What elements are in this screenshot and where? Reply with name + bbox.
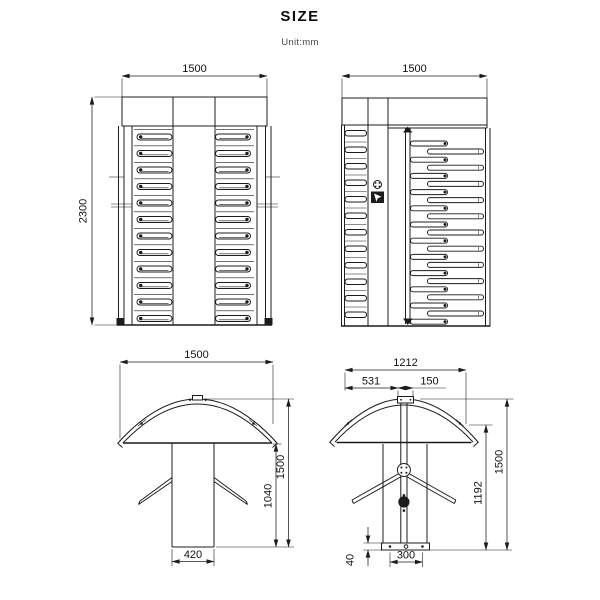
indicator-icon	[374, 181, 382, 189]
page-title: SIZE	[0, 8, 600, 25]
dim-label-tfront-width: 1500	[184, 349, 208, 361]
dim-label-tside-base-width: 300	[397, 550, 415, 562]
dim-label-side-width: 1500	[402, 63, 426, 75]
dim-label-tfront-total-height: 1500	[275, 455, 287, 479]
tfront-tripod-arms	[139, 478, 248, 505]
dim-label-tside-hub-height: 1192	[473, 481, 485, 505]
dim-label-tside-cap-width: 150	[420, 376, 438, 388]
tside-dim-heights: 1192 1500	[420, 399, 514, 550]
side-comb-bars	[345, 131, 367, 318]
tside-dim-offsets: 531 150	[345, 376, 446, 397]
tside-base	[363, 543, 512, 550]
dim-label-tfront-column-height: 1040	[263, 484, 275, 508]
rotor-top-bearing	[403, 127, 413, 133]
front-right-bars	[216, 129, 255, 321]
front-left-bars	[134, 129, 172, 321]
dim-label-front-height: 2300	[78, 199, 90, 223]
tripod-front-view-drawing: 1500	[85, 348, 315, 600]
unit-label: Unit:mm	[0, 37, 600, 48]
side-dim-width: 1500	[342, 63, 487, 98]
left-foot	[117, 318, 125, 325]
tfront-dim-heights: 1040 1500	[205, 399, 294, 547]
dim-label-front-width: 1500	[182, 63, 206, 75]
tripod-side-view-drawing: 1212 531 150	[320, 348, 570, 600]
drawing-sheet: SIZE Unit:mm 1500 2300	[0, 0, 600, 600]
dim-label-tside-offset-left: 531	[362, 376, 380, 388]
card-reader-icon	[371, 192, 384, 204]
front-dim-height: 2300	[78, 97, 123, 325]
right-foot	[265, 318, 273, 325]
dim-label-tside-base-height: 40	[345, 554, 357, 566]
front-view-drawing: 1500 2300	[60, 58, 310, 345]
front-cabinet	[109, 97, 280, 325]
side-view-drawing: 1500	[320, 58, 560, 345]
front-dim-width: 1500	[122, 63, 267, 97]
tside-dim-base-height: 40	[345, 527, 383, 566]
tside-canopy	[330, 397, 479, 447]
tside-tripod-hub	[352, 464, 456, 512]
tside-dim-base-width: 300	[390, 550, 423, 568]
tfront-canopy	[118, 396, 278, 448]
dim-label-tfront-column-width: 420	[184, 549, 202, 561]
front-arm-end	[398, 496, 409, 507]
dim-label-tside-total-height: 1500	[494, 450, 506, 474]
tfront-column	[172, 443, 214, 547]
canopy-cap	[193, 396, 203, 401]
dim-label-tside-width: 1212	[393, 357, 417, 369]
tfront-dim-column-width: 420	[172, 549, 214, 566]
